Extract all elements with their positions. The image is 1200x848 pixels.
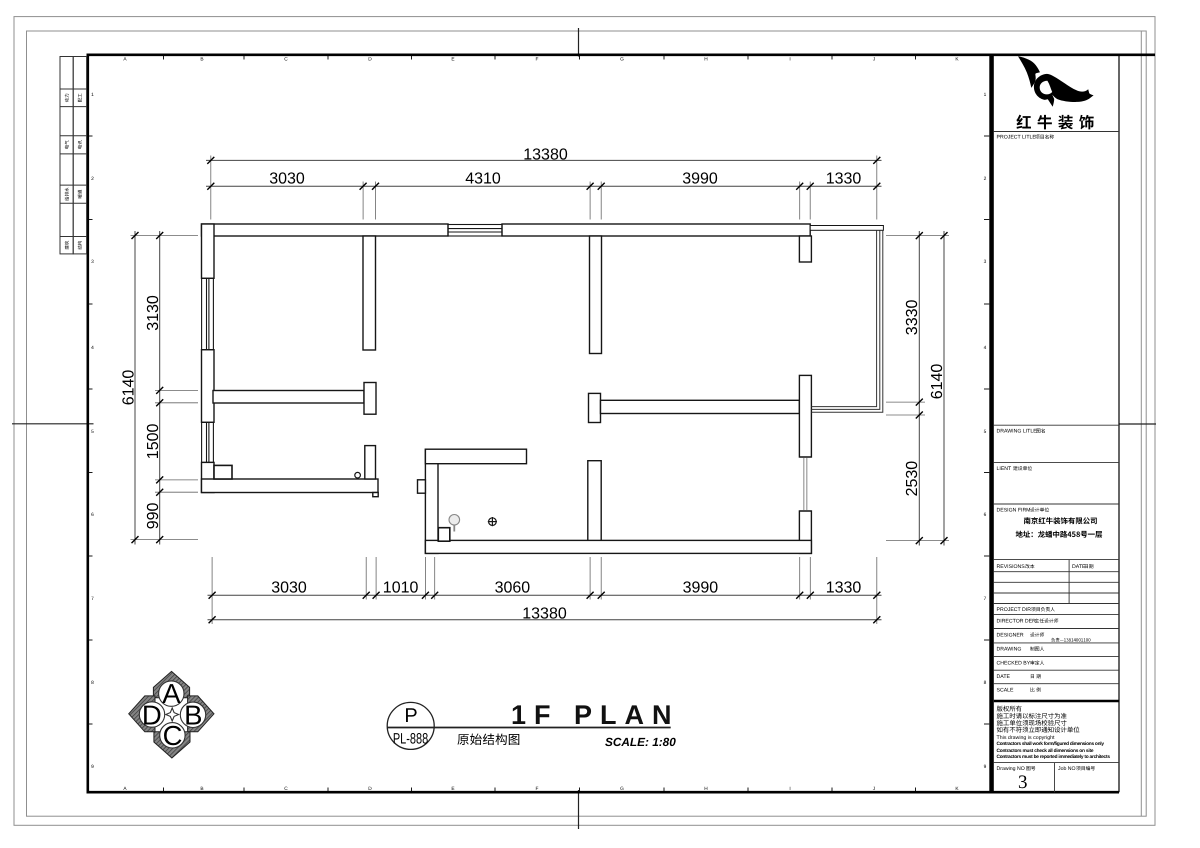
- svg-text:8: 8: [91, 680, 94, 686]
- svg-text:C: C: [284, 786, 288, 792]
- svg-text:1: 1: [984, 92, 987, 98]
- svg-text:13380: 13380: [522, 605, 567, 622]
- svg-text:3: 3: [1018, 772, 1028, 793]
- svg-text:13380: 13380: [523, 146, 568, 163]
- svg-text:3060: 3060: [495, 580, 531, 597]
- svg-text:2: 2: [91, 176, 94, 182]
- svg-text:4310: 4310: [465, 171, 501, 188]
- svg-text:2: 2: [984, 176, 987, 182]
- svg-text:7: 7: [91, 596, 94, 602]
- svg-text:SCALE: 1:80: SCALE: 1:80: [605, 735, 676, 749]
- svg-text:This drawing is copyright: This drawing is copyright: [997, 735, 1056, 741]
- svg-text:5: 5: [91, 429, 94, 435]
- svg-text:SCALE: SCALE: [997, 688, 1015, 694]
- svg-text:4: 4: [91, 345, 94, 351]
- svg-text:6140: 6140: [121, 370, 138, 406]
- svg-text:E: E: [451, 786, 454, 792]
- svg-text:F: F: [536, 57, 539, 63]
- svg-text:3: 3: [984, 259, 987, 265]
- svg-text:DESIGNER: DESIGNER: [997, 633, 1024, 639]
- svg-text:B: B: [200, 57, 203, 63]
- svg-text:Contractors must be reported i: Contractors must be reported immediately…: [997, 754, 1111, 760]
- svg-text:CHECKED BY: CHECKED BY: [997, 661, 1031, 667]
- svg-text:1330: 1330: [826, 171, 862, 188]
- svg-text:9: 9: [984, 764, 987, 770]
- svg-text:1: 1: [91, 92, 94, 98]
- svg-text:D: D: [142, 699, 162, 730]
- svg-text:DATE: DATE: [997, 674, 1011, 680]
- svg-text:P: P: [404, 705, 417, 727]
- svg-text:1010: 1010: [383, 580, 419, 597]
- svg-text:3330: 3330: [904, 300, 921, 336]
- svg-text:LIENT: LIENT: [997, 466, 1013, 472]
- svg-text:F: F: [536, 786, 539, 792]
- svg-text:3030: 3030: [271, 580, 307, 597]
- svg-text:Contractors shall work form/fi: Contractors shall work form/figured dime…: [997, 741, 1105, 747]
- svg-text:DRAWING LITLE: DRAWING LITLE: [997, 429, 1038, 435]
- svg-text:C: C: [163, 720, 183, 751]
- svg-text:B: B: [184, 699, 202, 730]
- svg-text:B: B: [200, 786, 203, 792]
- svg-text:C: C: [284, 57, 288, 63]
- svg-text:H: H: [704, 57, 708, 63]
- svg-text:8: 8: [984, 680, 987, 686]
- svg-text:Contractors must check all dim: Contractors must check all dimensions on…: [997, 748, 1094, 754]
- svg-text:1500: 1500: [145, 424, 162, 460]
- svg-text:PROJECT LITLE: PROJECT LITLE: [997, 135, 1037, 141]
- svg-text:A: A: [162, 678, 181, 709]
- svg-text:6: 6: [91, 512, 94, 518]
- svg-text:I: I: [789, 57, 790, 63]
- svg-text:D: D: [368, 786, 372, 792]
- svg-text:3990: 3990: [682, 171, 718, 188]
- svg-text:E: E: [451, 57, 454, 63]
- svg-text:Job NO: Job NO: [1058, 766, 1076, 772]
- svg-text:PROJECT DIR: PROJECT DIR: [997, 607, 1032, 613]
- svg-text:DATE: DATE: [1072, 564, 1086, 570]
- svg-text:6140: 6140: [929, 364, 946, 400]
- svg-text:7: 7: [984, 596, 987, 602]
- svg-text:DRAWING: DRAWING: [997, 647, 1022, 653]
- svg-text:PL-888: PL-888: [393, 731, 428, 748]
- svg-text:I: I: [789, 786, 790, 792]
- svg-text:REVISIONS: REVISIONS: [997, 564, 1026, 570]
- svg-text:2530: 2530: [904, 461, 921, 497]
- svg-text:990: 990: [145, 502, 162, 529]
- svg-text:3: 3: [91, 259, 94, 265]
- svg-text:G: G: [620, 786, 624, 792]
- svg-text:3030: 3030: [269, 171, 305, 188]
- svg-text:5: 5: [984, 429, 987, 435]
- svg-text:DESIGN FIRM: DESIGN FIRM: [997, 508, 1031, 514]
- svg-text:G: G: [620, 57, 624, 63]
- svg-text:H: H: [704, 786, 708, 792]
- svg-text:D: D: [368, 57, 372, 63]
- svg-text:4: 4: [984, 345, 987, 351]
- svg-text:3130: 3130: [145, 295, 162, 331]
- svg-text:1330: 1330: [826, 580, 862, 597]
- svg-text:1F PLAN: 1F PLAN: [511, 700, 680, 730]
- svg-text:3990: 3990: [683, 580, 719, 597]
- svg-text:9: 9: [91, 764, 94, 770]
- svg-text:DIRECTOR DER: DIRECTOR DER: [997, 619, 1037, 625]
- svg-text:6: 6: [984, 512, 987, 518]
